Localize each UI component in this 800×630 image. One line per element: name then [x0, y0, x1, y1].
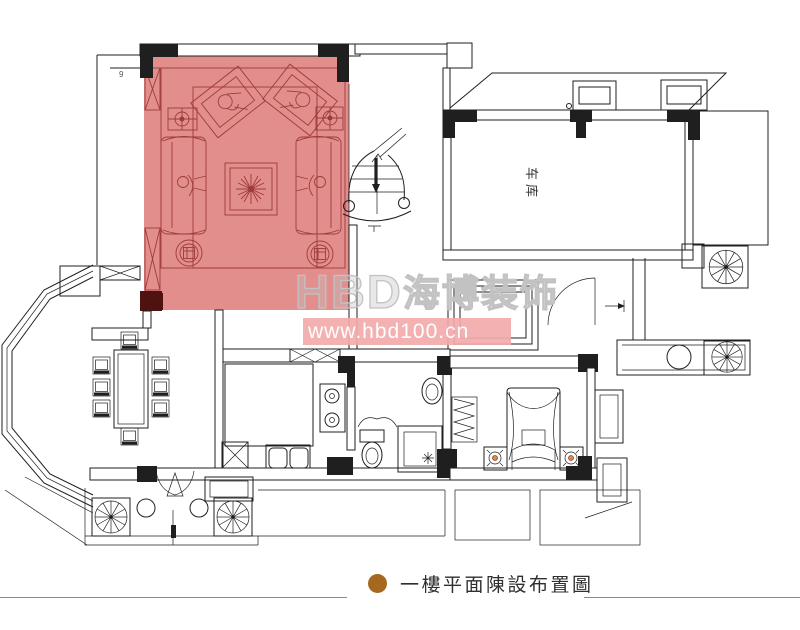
bathroom	[358, 356, 457, 478]
watermark-brand: HBD海博装饰	[295, 266, 559, 320]
planter	[190, 499, 208, 517]
watermark-url: www.hbd100.cn	[303, 318, 511, 345]
basin	[422, 378, 442, 404]
bottom-rule-right	[584, 597, 800, 598]
counter	[225, 364, 313, 446]
dining-table	[114, 350, 148, 428]
dimension-mark: 9	[119, 70, 124, 79]
spiral-fan-icon	[712, 342, 742, 372]
staircase	[343, 128, 411, 232]
entrance-porch	[85, 471, 445, 545]
garage-label: 车库	[524, 167, 539, 201]
stove	[320, 384, 345, 432]
spiral-column-icon	[95, 501, 127, 533]
spiral-fan-icon	[709, 250, 743, 284]
shower	[398, 426, 442, 472]
side-corridor	[617, 340, 750, 375]
watermark-cjk: 海博装饰	[403, 273, 559, 314]
bottom-rule-left	[0, 597, 347, 598]
bedroom	[450, 354, 640, 545]
spiral-column-icon	[217, 501, 249, 533]
nightstand-left	[484, 447, 507, 470]
garage: 车库	[443, 110, 768, 288]
driveway	[693, 111, 768, 245]
caption-bullet-icon	[368, 574, 387, 593]
sink	[266, 445, 310, 471]
caption: 一樓平面陳設布置圖	[368, 570, 594, 597]
floor-plan-page: { "plan": { "garage_label": "车库", "dim_m…	[0, 0, 800, 630]
toilet	[360, 430, 384, 468]
door-arc	[358, 418, 397, 427]
round-table	[667, 345, 691, 369]
caption-text: 一樓平面陳設布置圖	[400, 570, 594, 597]
bed	[507, 388, 560, 470]
planter	[137, 499, 155, 517]
watermark-latin: HBD	[295, 265, 403, 318]
